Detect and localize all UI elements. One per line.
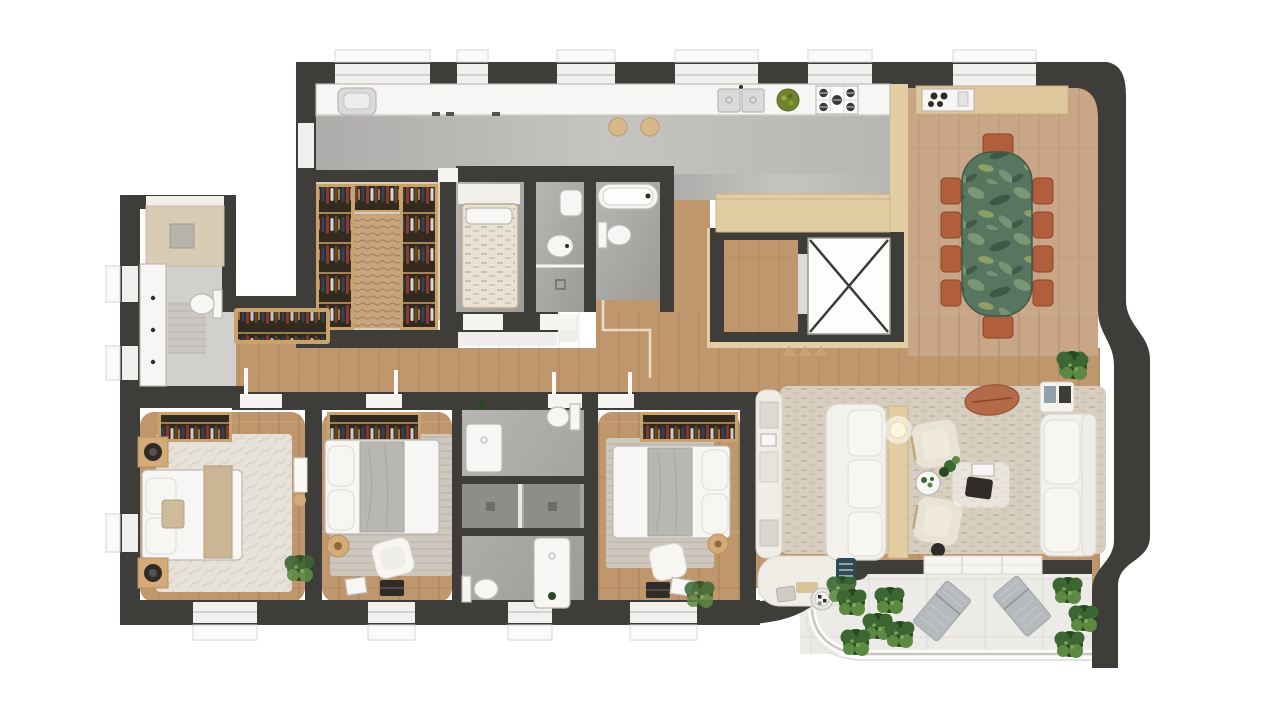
kitchen-floor	[316, 116, 890, 174]
magazine-table	[1040, 382, 1074, 412]
fruit-bowl	[777, 89, 799, 111]
bar-stool	[641, 118, 659, 136]
small-flower	[548, 592, 556, 600]
shower-drain	[486, 502, 495, 511]
round-side-table	[916, 471, 940, 495]
gas-cooktop	[816, 86, 858, 114]
shelf-item	[760, 402, 778, 428]
small-flower	[477, 402, 485, 410]
kitchen-dining-partition	[890, 84, 908, 232]
bedroom-plant	[685, 581, 715, 608]
bar-stool	[609, 118, 627, 136]
shower-rooms	[462, 484, 580, 528]
floor-plan-rendering	[0, 0, 1280, 720]
vanity	[466, 424, 502, 472]
floor-drain	[170, 224, 194, 248]
paper	[345, 577, 367, 596]
pillow	[702, 494, 728, 534]
sofa-left	[826, 404, 886, 560]
nightstand-top	[138, 437, 168, 467]
shelf-item	[761, 434, 776, 446]
floor-plan-stage	[0, 0, 1280, 720]
pillow	[702, 450, 728, 490]
master-bed	[142, 466, 242, 560]
bedroom2-bed	[325, 440, 439, 534]
floor-speaker	[931, 543, 945, 557]
elevator-core	[707, 228, 908, 356]
wardrobe-top	[352, 184, 402, 212]
kitchen-island	[716, 194, 890, 232]
service-kitchen-counter	[316, 84, 890, 116]
laundry-counter	[140, 264, 166, 386]
entry-triangles	[782, 346, 828, 356]
nightstand-bottom	[138, 558, 168, 588]
tub-faucet	[646, 194, 651, 199]
wardrobe-right	[400, 184, 438, 330]
stool	[776, 586, 796, 602]
small-bedroom	[458, 184, 520, 308]
tray	[965, 476, 994, 499]
bed-tray	[162, 500, 184, 528]
sideboard	[916, 86, 1068, 114]
master-wardrobe	[158, 412, 232, 442]
service-room	[316, 84, 890, 116]
shower-drain	[548, 502, 557, 511]
balcony-sliding-door	[924, 556, 1042, 574]
console-with-lamp	[884, 406, 912, 558]
left-exterior-wall	[120, 195, 140, 625]
shoe-rack	[234, 308, 330, 344]
magazine	[1059, 386, 1071, 403]
single-bed	[462, 204, 518, 308]
shelf-item	[760, 452, 778, 482]
door-stop	[294, 494, 306, 506]
wall-sink	[560, 190, 582, 216]
gray-blanket	[360, 442, 404, 532]
tan-runner	[204, 466, 232, 558]
gray-blanket	[648, 448, 692, 536]
bedroom3-bed	[613, 446, 730, 538]
lamp	[890, 422, 906, 438]
pouf-chair	[648, 542, 688, 582]
corner-plant	[1059, 353, 1089, 380]
shelf	[458, 184, 520, 204]
bedroom3-wardrobe	[640, 412, 738, 442]
bedroom-plant	[285, 555, 315, 582]
bedroom2-wardrobe	[327, 412, 421, 442]
door-leaf	[294, 458, 307, 492]
marble-dining-table	[962, 152, 1032, 316]
books	[972, 464, 994, 476]
faucet	[739, 85, 743, 89]
magazine	[1044, 386, 1056, 403]
pillow	[466, 208, 512, 224]
bidet	[547, 235, 573, 257]
shelf-item	[760, 520, 778, 546]
sofa-right	[1040, 414, 1096, 556]
